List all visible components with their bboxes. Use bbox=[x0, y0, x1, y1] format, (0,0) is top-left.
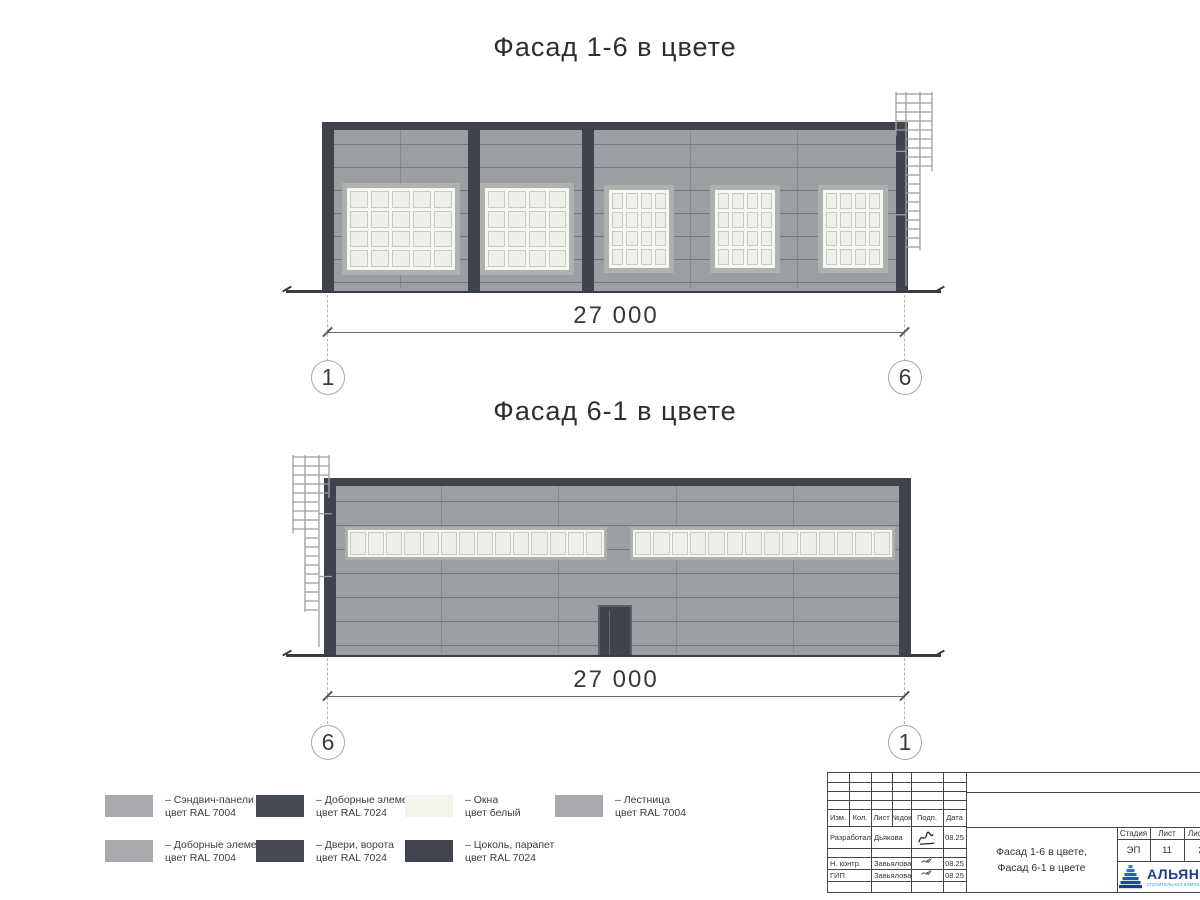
stamp-line bbox=[966, 792, 1200, 793]
rev-header: Изм. bbox=[827, 809, 849, 826]
stamp-line bbox=[827, 791, 966, 792]
stage-header: Стадия bbox=[1117, 827, 1150, 839]
sheet-value: 11 bbox=[1150, 839, 1184, 861]
legend-swatch bbox=[256, 795, 304, 817]
sheets-value: 2 bbox=[1184, 839, 1200, 861]
stamp-cell: Разработал bbox=[828, 826, 871, 848]
stamp-line bbox=[827, 772, 1200, 773]
legend-label: – Цоколь, парапетцвет RAL 7024 bbox=[465, 839, 554, 864]
legend-swatch bbox=[105, 795, 153, 817]
legend-label: – Двери, воротацвет RAL 7024 bbox=[316, 839, 394, 864]
legend-label: – Окнацвет белый bbox=[465, 794, 521, 819]
logo-name: АЛЬЯНС bbox=[1147, 867, 1200, 881]
stamp-cell: Дьякова bbox=[872, 826, 910, 848]
legend-label: – Лестницацвет RAL 7004 bbox=[615, 794, 686, 819]
stamp-cell: 08.25 bbox=[943, 857, 966, 869]
drawing-sheet: Фасад 1-6 в цвете Фасад 6-1 в цвете 27 0… bbox=[0, 0, 1200, 900]
legend-label: – Сэндвич-панелицвет RAL 7004 bbox=[165, 794, 254, 819]
legend-swatch bbox=[105, 840, 153, 862]
legend-swatch bbox=[256, 840, 304, 862]
signature-icon bbox=[914, 828, 940, 846]
doc-title-line: Фасад 6-1 в цвете bbox=[997, 860, 1085, 876]
legend-text: – Цоколь, парапет bbox=[465, 839, 554, 852]
sheet-header: Лист bbox=[1150, 827, 1184, 839]
stamp-cell: Завьялова bbox=[872, 869, 910, 881]
company-logo: АЛЬЯНС строительная компания bbox=[1119, 862, 1200, 892]
signature-icon bbox=[914, 870, 940, 881]
legend-text: цвет RAL 7024 bbox=[465, 852, 554, 865]
title-block: Изм.Кол.Лист№докПодп.ДатаРазработалДьяко… bbox=[827, 772, 1200, 893]
logo-subtitle: строительная компания bbox=[1147, 882, 1200, 888]
signature-icon bbox=[914, 858, 940, 869]
sheets-header: Листов bbox=[1184, 827, 1200, 839]
stamp-line bbox=[827, 800, 966, 801]
rev-header: Лист bbox=[871, 809, 892, 826]
rev-header: №док bbox=[892, 809, 911, 826]
legend-text: – Двери, ворота bbox=[316, 839, 394, 852]
stage-value: ЭП bbox=[1117, 839, 1150, 861]
stamp-cell: ГИП bbox=[828, 869, 871, 881]
legend-swatch bbox=[405, 795, 453, 817]
rev-header: Кол. bbox=[849, 809, 871, 826]
legend-text: цвет RAL 7004 bbox=[615, 807, 686, 820]
stamp-line bbox=[827, 782, 966, 783]
logo-pyramid-icon bbox=[1119, 865, 1142, 889]
stamp-cell: 08.25 bbox=[943, 826, 966, 848]
stamp-line bbox=[827, 881, 966, 882]
stamp-cell: Завьялова bbox=[872, 857, 910, 869]
legend-swatch bbox=[405, 840, 453, 862]
legend-text: цвет RAL 7024 bbox=[316, 852, 394, 865]
doc-title-line: Фасад 1-6 в цвете, bbox=[996, 844, 1087, 860]
legend-text: цвет RAL 7004 bbox=[165, 807, 254, 820]
stamp-cell: Н. контр. bbox=[828, 857, 871, 869]
stamp-cell: 08.25 bbox=[943, 869, 966, 881]
legend-text: цвет белый bbox=[465, 807, 521, 820]
rev-header: Дата bbox=[943, 809, 966, 826]
rev-header: Подп. bbox=[911, 809, 943, 826]
stamp-doc-title: Фасад 1-6 в цвете, Фасад 6-1 в цвете bbox=[966, 827, 1117, 893]
legend-text: – Окна bbox=[465, 794, 521, 807]
legend-text: – Лестница bbox=[615, 794, 686, 807]
legend: – Сэндвич-панелицвет RAL 7004– Доборные … bbox=[0, 0, 1200, 900]
stamp-line bbox=[827, 848, 966, 849]
legend-text: – Сэндвич-панели bbox=[165, 794, 254, 807]
legend-swatch bbox=[555, 795, 603, 817]
